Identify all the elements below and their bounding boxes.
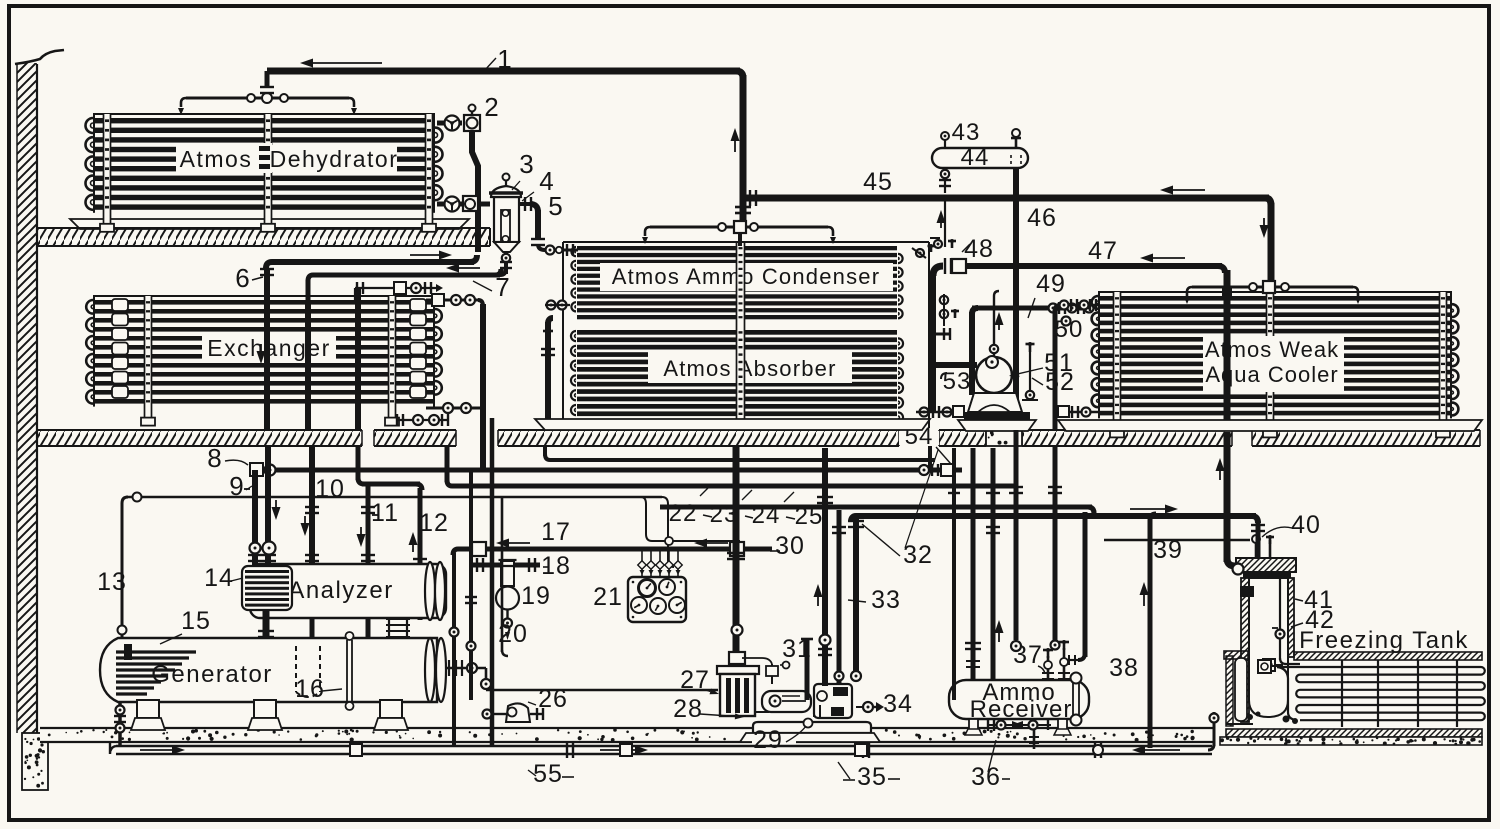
svg-text:Receiver: Receiver xyxy=(970,696,1073,723)
svg-text:6: 6 xyxy=(235,263,250,293)
svg-text:14: 14 xyxy=(204,564,234,592)
svg-text:44: 44 xyxy=(961,144,990,171)
svg-text:16: 16 xyxy=(295,675,325,703)
svg-text:29: 29 xyxy=(753,726,783,754)
svg-text:48: 48 xyxy=(964,235,994,263)
svg-text:47: 47 xyxy=(1088,237,1118,265)
svg-text:33: 33 xyxy=(871,586,901,614)
svg-text:35: 35 xyxy=(857,763,887,791)
svg-text:11: 11 xyxy=(371,499,399,527)
svg-text:Atmos Ammo Condenser: Atmos Ammo Condenser xyxy=(612,264,881,289)
svg-text:27: 27 xyxy=(680,666,710,694)
svg-text:9: 9 xyxy=(229,471,244,501)
svg-text:7: 7 xyxy=(495,272,510,302)
svg-text:17: 17 xyxy=(541,518,571,546)
svg-text:32: 32 xyxy=(903,541,933,569)
svg-text:8: 8 xyxy=(207,443,222,473)
svg-text:25: 25 xyxy=(795,503,824,530)
svg-text:31: 31 xyxy=(782,635,812,663)
svg-text:24: 24 xyxy=(752,502,781,529)
svg-text:45: 45 xyxy=(863,168,893,196)
svg-text:3: 3 xyxy=(519,149,534,179)
svg-text:12: 12 xyxy=(419,509,449,537)
svg-text:15: 15 xyxy=(181,607,211,635)
svg-text:38: 38 xyxy=(1109,654,1139,682)
svg-text:49: 49 xyxy=(1036,270,1066,298)
svg-text:5: 5 xyxy=(548,191,563,221)
svg-text:10: 10 xyxy=(315,475,345,503)
svg-text:46: 46 xyxy=(1027,204,1057,232)
svg-text:21: 21 xyxy=(593,583,623,611)
svg-text:Atmos Absorber: Atmos Absorber xyxy=(663,356,836,381)
svg-text:Dehydrator: Dehydrator xyxy=(270,146,399,172)
svg-text:Freezing Tank: Freezing Tank xyxy=(1299,627,1469,654)
svg-text:Generator: Generator xyxy=(151,661,273,688)
svg-text:39: 39 xyxy=(1153,536,1183,564)
svg-text:36: 36 xyxy=(971,763,1001,791)
svg-text:55: 55 xyxy=(533,760,563,788)
svg-text:2: 2 xyxy=(484,92,499,122)
svg-text:19: 19 xyxy=(521,582,551,610)
svg-text:34: 34 xyxy=(883,690,913,718)
svg-text:13: 13 xyxy=(97,568,127,596)
svg-text:18: 18 xyxy=(541,552,571,580)
svg-text:1: 1 xyxy=(497,44,512,74)
svg-text:43: 43 xyxy=(952,119,981,146)
svg-text:22: 22 xyxy=(669,500,698,527)
svg-text:30: 30 xyxy=(775,532,805,560)
svg-text:52: 52 xyxy=(1045,368,1075,396)
svg-text:40: 40 xyxy=(1291,511,1321,539)
svg-text:26: 26 xyxy=(538,685,568,713)
svg-text:28: 28 xyxy=(673,695,703,723)
svg-text:Atmos: Atmos xyxy=(180,146,253,172)
svg-text:Analyzer: Analyzer xyxy=(288,577,393,604)
